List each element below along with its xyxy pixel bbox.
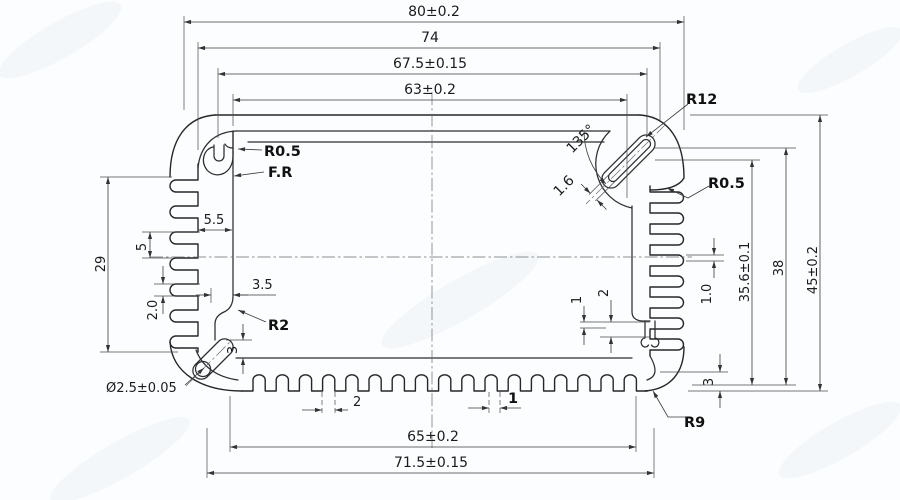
drawing-sheet: 80±0.2 74 67.5±0.15 63±0.2 R12 R0.5 135°… (0, 0, 900, 500)
dim-3-right: 3 (702, 378, 717, 386)
ledge-foot-left (641, 321, 648, 347)
dim-45: 45±0.2 (806, 246, 821, 294)
right-inner-wall-ledge (632, 206, 650, 321)
top-right-corner-arc (640, 115, 684, 190)
dim-71-5: 71.5±0.15 (394, 455, 468, 471)
dim-ledge-1: 1 (570, 296, 585, 304)
dim-1-0: 1.0 (700, 284, 715, 305)
dim-slot-angle: 135° (564, 122, 599, 157)
dim-74: 74 (421, 30, 439, 46)
dim-2-0: 2.0 (146, 300, 161, 321)
top-left-screw-channel (214, 145, 224, 161)
dim-29: 29 (94, 256, 109, 273)
left-inner-wall (215, 131, 233, 340)
dim-3-5: 3.5 (252, 278, 273, 293)
callout-r9: R9 (684, 415, 705, 431)
dim-35-6: 35.6±0.1 (738, 242, 753, 303)
ledge-foot-right (652, 321, 659, 347)
top-left-mouth-fillet (225, 144, 233, 148)
dim-5-5: 5.5 (204, 213, 225, 228)
dim-65: 65±0.2 (407, 429, 459, 445)
centerlines (150, 92, 692, 448)
dim-80: 80±0.2 (408, 4, 460, 20)
dim-slot-width: 1.6 (551, 173, 578, 200)
callout-fr: F.R (268, 165, 292, 181)
leader-fr (234, 172, 264, 176)
callout-r05-right: R0.5 (708, 176, 745, 192)
bottom-tooth-comb (242, 375, 647, 391)
leader-r9 (653, 391, 686, 417)
dim-3-left: 3 (226, 346, 241, 354)
callout-r2: R2 (268, 318, 289, 334)
dim-63: 63±0.2 (404, 82, 456, 98)
leader-r12 (646, 104, 688, 137)
leader-r2 (238, 310, 266, 322)
dim-hole-dia: Ø2.5±0.05 (106, 381, 177, 396)
callout-r05-left: R0.5 (264, 144, 301, 160)
extension-lines (100, 16, 828, 478)
bottom-right-inner-corner (647, 356, 655, 380)
profile-outline (170, 115, 684, 391)
leader-r05-left (238, 149, 262, 150)
dim-tooth-width: 1 (508, 391, 518, 407)
dim-ledge-2: 2 (597, 289, 612, 297)
dimension-lines (108, 22, 820, 473)
top-left-corner-arc (170, 115, 215, 177)
dim-tooth-pitch: 2 (353, 395, 361, 410)
dim-5: 5 (135, 243, 150, 251)
dim-67-5: 67.5±0.15 (393, 56, 467, 72)
left-fin-comb (170, 164, 198, 352)
extrusion-profile-drawing: 80±0.2 74 67.5±0.15 63±0.2 R12 R0.5 135°… (0, 0, 900, 500)
dim-38: 38 (772, 260, 787, 277)
bottom-right-corner-arc (645, 347, 684, 391)
dimline-16-a (581, 184, 591, 194)
profile-interior (193, 131, 659, 380)
callout-r12: R12 (686, 92, 717, 108)
dimline-16-b (597, 200, 607, 210)
